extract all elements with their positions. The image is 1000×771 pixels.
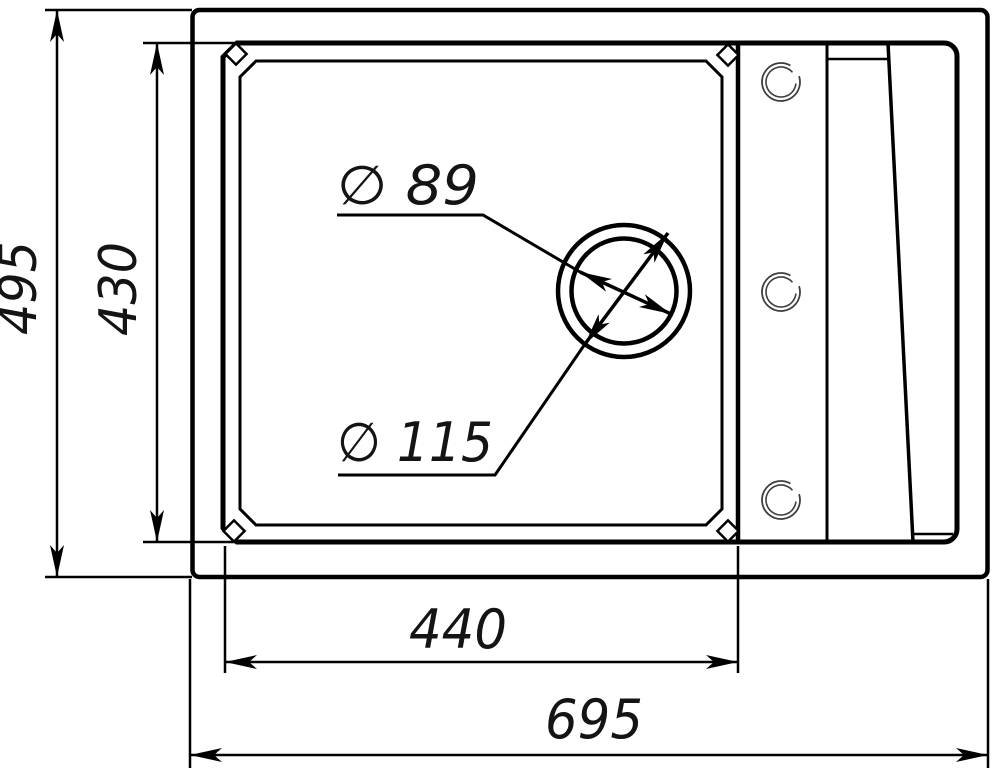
dimension-label-430: 430	[89, 242, 149, 336]
dimension-overall-width: 695	[190, 579, 988, 768]
dimension-label-495: 495	[0, 241, 49, 335]
drawing-canvas: ∅ 89 ∅ 115 495 430 440 695	[0, 0, 1000, 771]
sink-body	[193, 10, 988, 577]
drain-outer-diameter-label: ∅ 115	[337, 411, 493, 474]
sink-technical-drawing: ∅ 89 ∅ 115 495 430 440 695	[0, 0, 1000, 771]
bowl-and-deck-outline	[223, 43, 957, 542]
dimension-label-440: 440	[409, 598, 507, 661]
drain-inner-diameter-label: ∅ 89	[337, 154, 479, 217]
dimension-label-695: 695	[545, 688, 643, 751]
